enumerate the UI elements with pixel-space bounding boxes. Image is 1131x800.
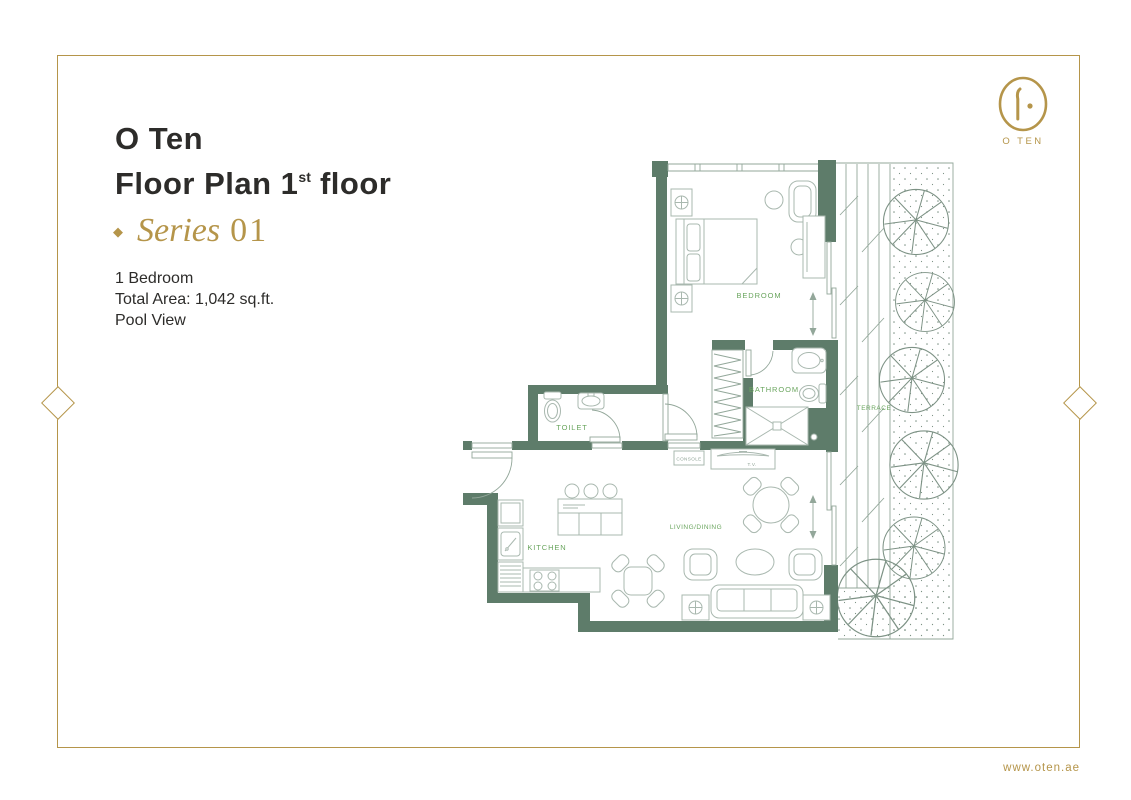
room-label-toilet: TOILET — [556, 423, 588, 432]
corridor-door-leaf — [665, 434, 697, 440]
lamp-table-left — [682, 595, 709, 620]
room-label-terrace: TERRACE — [857, 405, 892, 412]
bathroom-sink — [792, 348, 826, 373]
dining-table-square — [610, 553, 667, 610]
tv-unit — [711, 449, 775, 469]
armchair-right — [789, 549, 822, 580]
toilet-sink — [578, 393, 604, 409]
toilet-fixture — [544, 392, 561, 422]
sofa — [711, 585, 803, 618]
room-label-bathroom: BATHROOM — [749, 385, 799, 394]
toilet-door-leaf — [590, 437, 620, 442]
side-table — [765, 191, 783, 209]
room-label-bedroom: BEDROOM — [736, 291, 781, 300]
entry-door-opening — [472, 443, 512, 448]
kitchen-island — [558, 484, 622, 535]
fridge — [498, 500, 523, 526]
sliding-door-living — [827, 452, 831, 510]
drainboard — [498, 562, 523, 592]
label-console: CONSOLE — [676, 457, 701, 462]
sliding-door-living — [832, 506, 836, 565]
bathroom-toilet — [800, 384, 827, 403]
website-url: www.oten.ae — [1003, 762, 1080, 774]
entry-door-swing — [472, 458, 512, 498]
bar-stool — [603, 484, 617, 498]
lamp-table-right — [803, 595, 830, 620]
bar-stool — [565, 484, 579, 498]
bathroom-door-leaf — [746, 350, 751, 376]
label-tv: T.V. — [747, 462, 756, 467]
bar-stool — [584, 484, 598, 498]
sliding-door-bedroom — [827, 242, 831, 294]
toilet-door-swing — [592, 410, 620, 440]
dining-table-round — [741, 475, 800, 534]
room-label-living-dining: LIVING/DINING — [670, 524, 722, 531]
entry-door-leaf — [472, 452, 512, 458]
brochure-page: O Ten Floor Plan 1st floor ◆ Series 01 1… — [0, 0, 1131, 800]
bathroom-door-swing — [751, 351, 773, 375]
terrace-area — [836, 163, 958, 639]
sliding-door-bedroom — [832, 288, 836, 338]
desk — [791, 216, 825, 278]
floor-plan-svg: BEDROOM BATHROOM TOILET KITCHEN LIVING/D… — [0, 0, 1131, 800]
armchair-left — [684, 549, 717, 580]
coffee-table — [736, 549, 774, 575]
kitchen-sink — [498, 528, 523, 560]
shower — [746, 407, 817, 445]
stove — [530, 570, 559, 591]
corridor-door-swing — [665, 404, 697, 437]
room-label-kitchen: KITCHEN — [527, 543, 566, 552]
